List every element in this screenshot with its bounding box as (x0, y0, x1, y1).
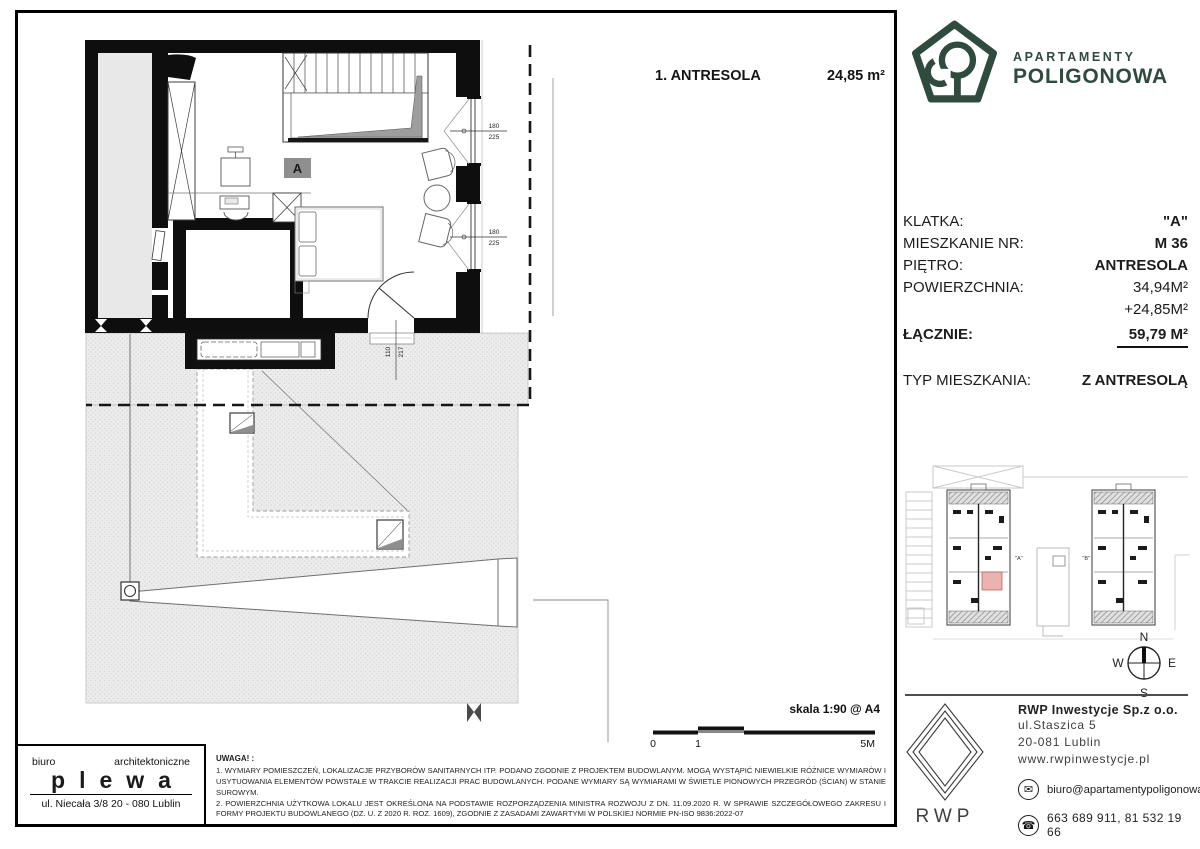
right-panel-divider (905, 694, 1188, 696)
window-dim-width: 180 (489, 229, 500, 236)
site-plan-minimap: "A" "B" (903, 460, 1190, 652)
rwp-logo: RWP (902, 700, 997, 830)
info-value: ANTRESOLA (1095, 255, 1188, 277)
architect-box: biuro architektoniczne plewa ul. Niecała… (18, 744, 206, 824)
architect-address: ul. Niecała 3/8 20 - 080 Lublin (18, 798, 204, 810)
compass-s: S (1140, 686, 1148, 700)
wardrobe (168, 54, 196, 220)
type-value: Z ANTRESOLĄ (1082, 370, 1188, 392)
brand-name-line2: POLIGONOWA (1013, 65, 1168, 89)
note-2: 2. POWIERZCHNIA UŻYTKOWA LOKALU JEST OKR… (216, 799, 886, 821)
architect-divider (30, 794, 192, 795)
developer-block: RWP Inwestycje Sp.z o.o. ul.Staszica 5 2… (1018, 703, 1196, 839)
adjacent-unit-strip (98, 53, 152, 318)
window-dim-height: 225 (489, 240, 500, 247)
phone-icon: ☎ (1018, 815, 1039, 836)
window: 180 225 (444, 96, 507, 166)
building-a (947, 484, 1010, 625)
scale-tick-1: 1 (695, 738, 701, 749)
window-dim-width: 180 (489, 123, 500, 130)
plan-level-title: 1. ANTRESOLA (655, 68, 761, 84)
notes-title: UWAGA! : (216, 753, 886, 764)
developer-street: ul.Staszica 5 (1018, 717, 1196, 734)
skylight (230, 413, 254, 433)
compass-n: N (1140, 630, 1149, 644)
room-label: A (284, 158, 311, 178)
notes-block: UWAGA! : 1. WYMIARY POMIESZCZEŃ, LOKALIZ… (216, 753, 886, 820)
info-value: +24,85M² (1124, 299, 1188, 321)
architect-name: plewa (18, 768, 218, 792)
info-label: PIĘTRO: (903, 255, 963, 277)
building-b (1092, 484, 1155, 625)
info-label: KLATKA: (903, 211, 964, 233)
window: 180 225 (444, 201, 507, 272)
side-table (221, 147, 250, 186)
info-value: "A" (1163, 211, 1188, 233)
floor-plan-sheet: 180 225 180 225 (0, 0, 1200, 849)
building-a-label: "A" (1015, 556, 1023, 562)
total-area-value: 59,79 M² (1117, 324, 1188, 348)
stairs (283, 53, 428, 142)
type-label: TYP MIESZKANIA: (903, 370, 1031, 392)
scale-bar: 0 1 5M (648, 719, 880, 749)
section-marker (467, 703, 481, 722)
window-dim-height: 225 (489, 134, 500, 141)
pentagon-tree-icon (906, 14, 1003, 114)
skylight (377, 520, 403, 549)
developer-city: 20-081 Lublin (1018, 734, 1196, 751)
desk (220, 196, 249, 220)
scale-tick-0: 0 (650, 738, 656, 749)
scale-bar-block: skala 1:90 @ A4 0 1 5M (648, 702, 880, 754)
balcony (185, 333, 335, 369)
rwp-logo-text: RWP (916, 806, 975, 827)
compass-e: E (1168, 656, 1176, 670)
scale-tick-5m: 5M (860, 738, 875, 749)
developer-company: RWP Inwestycje Sp.z o.o. (1018, 703, 1196, 717)
door-dim-width: 110 (385, 346, 392, 357)
door-dim-height: 217 (398, 346, 405, 357)
envelope-icon: ✉ (1018, 779, 1039, 800)
info-value: M 36 (1155, 233, 1188, 255)
total-label: ŁĄCZNIE: (903, 324, 973, 348)
plan-level-area: 24,85 m² (827, 68, 885, 84)
building-b-label: "B" (1082, 556, 1090, 562)
scale-label: skala 1:90 @ A4 (648, 702, 880, 716)
info-label: POWIERZCHNIA: (903, 277, 1024, 299)
room-label-text: A (293, 161, 303, 176)
developer-website: www.rwpinwestycje.pl (1018, 751, 1196, 768)
bed (295, 207, 383, 293)
info-label: MIESZKANIE NR: (903, 233, 1024, 255)
plan-heading: 1. ANTRESOLA 24,85 m² (655, 68, 885, 84)
note-1: 1. WYMIARY POMIESZCZEŃ, LOKALIZACJE PRZY… (216, 766, 886, 798)
developer-phones: 663 689 911, 81 532 19 66 (1047, 811, 1196, 839)
armchairs (419, 147, 458, 248)
compass-w: W (1112, 656, 1124, 670)
info-value: 34,94M² (1133, 277, 1188, 299)
brand-name-line1: APARTAMENTY (1013, 50, 1168, 64)
bathroom (173, 218, 303, 333)
highlighted-unit (982, 572, 1002, 590)
brand-logo: APARTAMENTY POLIGONOWA (906, 14, 1192, 114)
developer-email: biuro@apartamentypoligonowa.pl (1047, 784, 1200, 796)
unit-info-panel: KLATKA:"A" MIESZKANIE NR:M 36 PIĘTRO:ANT… (903, 211, 1188, 392)
